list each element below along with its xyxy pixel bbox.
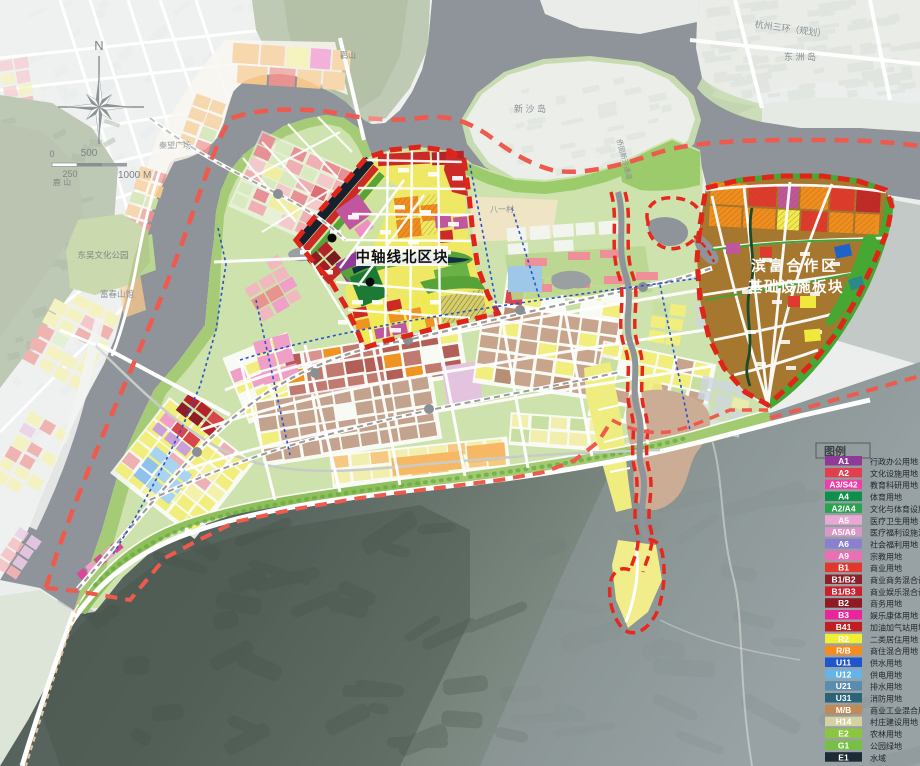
svg-text:体育用地: 体育用地 (870, 492, 902, 502)
svg-text:H14: H14 (836, 717, 852, 727)
svg-text:商业商务混合设施用地: 商业商务混合设施用地 (870, 575, 920, 585)
svg-text:G1: G1 (838, 740, 850, 750)
svg-text:U21: U21 (836, 681, 852, 691)
svg-text:富春山馆: 富春山馆 (100, 289, 134, 299)
svg-text:供电用地: 供电用地 (870, 670, 902, 680)
svg-text:R2: R2 (838, 634, 849, 644)
svg-text:U11: U11 (836, 657, 851, 667)
svg-text:M/B: M/B (836, 705, 852, 715)
svg-text:鹳山: 鹳山 (340, 50, 356, 60)
svg-text:A9: A9 (838, 551, 849, 561)
svg-text:B1/B2: B1/B2 (831, 575, 855, 585)
svg-text:R/B: R/B (836, 646, 851, 656)
svg-text:娱乐康体用地: 娱乐康体用地 (870, 611, 918, 621)
svg-text:A4: A4 (838, 492, 849, 502)
svg-text:村庄建设用地: 村庄建设用地 (870, 717, 918, 727)
svg-text:500: 500 (81, 148, 98, 159)
svg-text:二类居住用地: 二类居住用地 (870, 634, 918, 644)
svg-text:滨富合作区: 滨富合作区 (751, 257, 839, 275)
svg-text:排水用地: 排水用地 (870, 682, 902, 692)
svg-text:商务用地: 商务用地 (870, 599, 902, 609)
svg-text:医疗福利设施混合用地: 医疗福利设施混合用地 (870, 528, 920, 538)
svg-text:东吴文化公园: 东吴文化公园 (77, 250, 128, 260)
svg-text:商业工业混合用地: 商业工业混合用地 (870, 705, 920, 715)
svg-text:供水用地: 供水用地 (870, 658, 902, 668)
svg-text:消防用地: 消防用地 (870, 694, 902, 704)
svg-text:U12: U12 (836, 669, 852, 679)
svg-text:农林用地: 农林用地 (870, 729, 902, 739)
svg-text:A2/A4: A2/A4 (831, 503, 855, 513)
svg-text:社会福利用地: 社会福利用地 (870, 539, 918, 549)
svg-text:E2: E2 (838, 729, 849, 739)
svg-text:U31: U31 (836, 693, 852, 703)
svg-text:医疗卫生用地: 医疗卫生用地 (870, 516, 918, 526)
svg-text:八一村: 八一村 (490, 204, 514, 214)
svg-text:秦望广场: 秦望广场 (159, 140, 191, 150)
svg-text:A3/S42: A3/S42 (829, 480, 858, 490)
svg-text:商住混合用地: 商住混合用地 (870, 646, 918, 656)
svg-text:E1: E1 (838, 752, 849, 762)
svg-text:教育科研用地: 教育科研用地 (870, 480, 918, 490)
svg-text:B2: B2 (838, 598, 849, 608)
svg-text:行政办公用地: 行政办公用地 (870, 457, 918, 467)
svg-text:250: 250 (62, 169, 77, 179)
svg-text:新 沙 岛: 新 沙 岛 (514, 103, 546, 114)
svg-text:A5/A6: A5/A6 (831, 527, 855, 537)
svg-text:商业用地: 商业用地 (870, 563, 902, 573)
svg-text:B3: B3 (838, 610, 849, 620)
svg-text:A2: A2 (838, 468, 849, 478)
svg-text:中轴线北区块: 中轴线北区块 (356, 248, 449, 266)
svg-text:0: 0 (49, 149, 54, 159)
svg-text:公园绿地: 公园绿地 (870, 741, 902, 751)
svg-text:A5: A5 (838, 515, 849, 525)
svg-text:B41: B41 (836, 622, 852, 632)
svg-text:B1: B1 (838, 563, 849, 573)
svg-text:A6: A6 (838, 539, 849, 549)
svg-text:1000 M: 1000 M (118, 170, 151, 181)
svg-text:文化设施用地: 文化设施用地 (870, 468, 918, 478)
svg-text:文化与体育设施混合用地: 文化与体育设施混合用地 (870, 504, 920, 514)
svg-text:N: N (94, 38, 103, 53)
svg-text:A1: A1 (838, 456, 849, 466)
svg-text:宗教用地: 宗教用地 (870, 551, 902, 561)
svg-text:商业娱乐混合设施用地: 商业娱乐混合设施用地 (870, 587, 920, 597)
svg-text:基础设施板块: 基础设施板块 (747, 278, 844, 296)
svg-text:加油加气站用地: 加油加气站用地 (870, 622, 920, 632)
svg-text:水域: 水域 (870, 753, 886, 763)
svg-text:B1/B3: B1/B3 (831, 586, 855, 596)
svg-text:东 洲 岛: 东 洲 岛 (784, 51, 816, 62)
